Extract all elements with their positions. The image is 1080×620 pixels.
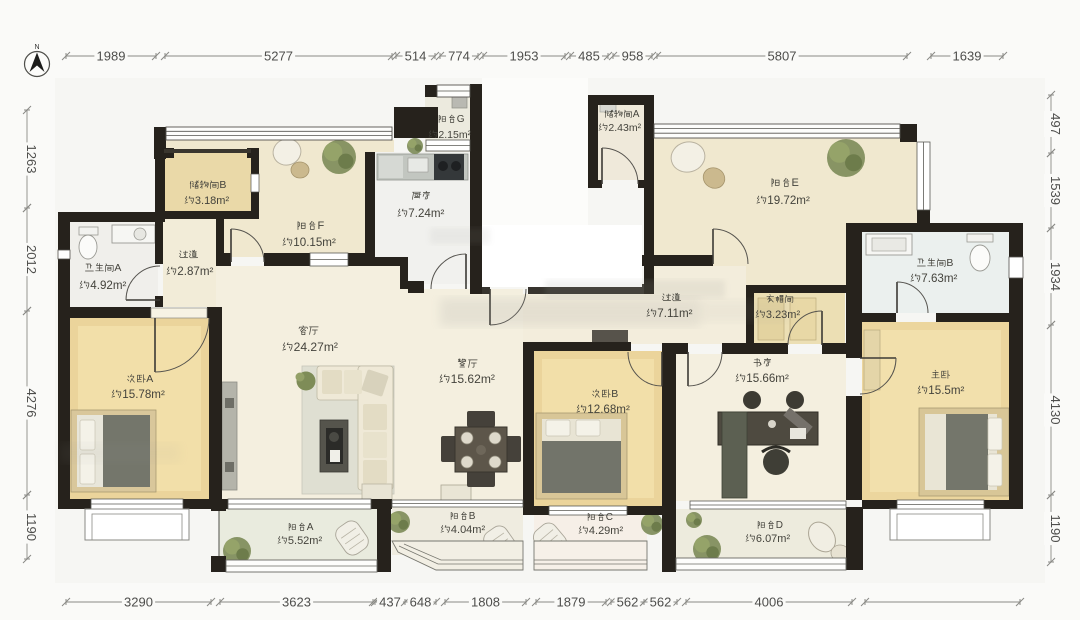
svg-text:1934: 1934 <box>1048 262 1063 291</box>
svg-text:3.18m²: 3.18m² <box>195 195 230 207</box>
svg-text:4006: 4006 <box>755 595 784 610</box>
svg-text:4.92m²: 4.92m² <box>90 279 126 292</box>
svg-text:15.66m²: 15.66m² <box>746 372 789 385</box>
svg-text:E: E <box>792 177 799 189</box>
svg-text:3.23m²: 3.23m² <box>766 309 801 321</box>
svg-text:958: 958 <box>622 49 644 64</box>
svg-text:7.24m²: 7.24m² <box>408 207 444 220</box>
svg-text:B: B <box>219 179 226 191</box>
svg-text:B: B <box>611 388 618 400</box>
svg-text:5807: 5807 <box>768 49 797 64</box>
svg-text:2012: 2012 <box>24 245 39 274</box>
svg-text:437: 437 <box>379 595 401 610</box>
svg-text:2.43m²: 2.43m² <box>608 122 641 134</box>
svg-text:4276: 4276 <box>24 389 39 418</box>
svg-text:24.27m²: 24.27m² <box>294 340 338 354</box>
svg-text:A: A <box>114 262 121 274</box>
svg-text:7.63m²: 7.63m² <box>921 272 957 285</box>
svg-text:1953: 1953 <box>510 49 539 64</box>
svg-text:648: 648 <box>410 595 432 610</box>
svg-text:514: 514 <box>405 49 427 64</box>
svg-text:4.29m²: 4.29m² <box>589 525 624 537</box>
svg-text:B: B <box>469 511 476 522</box>
svg-text:15.62m²: 15.62m² <box>451 372 495 386</box>
svg-text:A: A <box>146 373 153 385</box>
svg-text:A: A <box>307 522 314 533</box>
svg-text:A: A <box>633 109 640 120</box>
svg-text:15.78m²: 15.78m² <box>122 388 165 401</box>
svg-text:4130: 4130 <box>1048 396 1063 425</box>
svg-text:1190: 1190 <box>24 513 39 541</box>
svg-text:G: G <box>457 114 465 125</box>
svg-text:1539: 1539 <box>1048 176 1063 205</box>
svg-text:5.52m²: 5.52m² <box>288 535 323 547</box>
svg-text:5277: 5277 <box>264 49 293 64</box>
svg-text:6.07m²: 6.07m² <box>756 533 791 545</box>
svg-text:N: N <box>34 44 39 51</box>
svg-text:1190: 1190 <box>1048 515 1063 543</box>
svg-text:2.15m²: 2.15m² <box>438 129 471 141</box>
svg-text:1879: 1879 <box>557 595 586 610</box>
svg-text:C: C <box>606 512 613 523</box>
svg-text:19.72m²: 19.72m² <box>767 194 810 207</box>
svg-text:3290: 3290 <box>124 595 153 610</box>
svg-text:1989: 1989 <box>97 49 126 64</box>
svg-text:B: B <box>946 257 953 269</box>
svg-text:10.15m²: 10.15m² <box>293 236 336 249</box>
svg-text:12.68m²: 12.68m² <box>587 403 630 416</box>
svg-text:7.11m²: 7.11m² <box>657 307 692 320</box>
svg-text:1639: 1639 <box>953 49 982 64</box>
svg-text:562: 562 <box>617 595 639 610</box>
svg-text:1808: 1808 <box>471 595 500 610</box>
svg-text:1263: 1263 <box>24 145 39 174</box>
svg-text:774: 774 <box>448 49 470 64</box>
svg-text:2.87m²: 2.87m² <box>177 265 213 278</box>
svg-text:485: 485 <box>578 49 600 64</box>
svg-text:15.5m²: 15.5m² <box>928 384 964 397</box>
svg-text:3623: 3623 <box>282 595 311 610</box>
svg-text:562: 562 <box>650 595 672 610</box>
svg-text:D: D <box>776 520 783 531</box>
svg-text:497: 497 <box>1048 113 1063 135</box>
svg-text:4.04m²: 4.04m² <box>451 524 486 536</box>
svg-text:F: F <box>318 220 325 232</box>
